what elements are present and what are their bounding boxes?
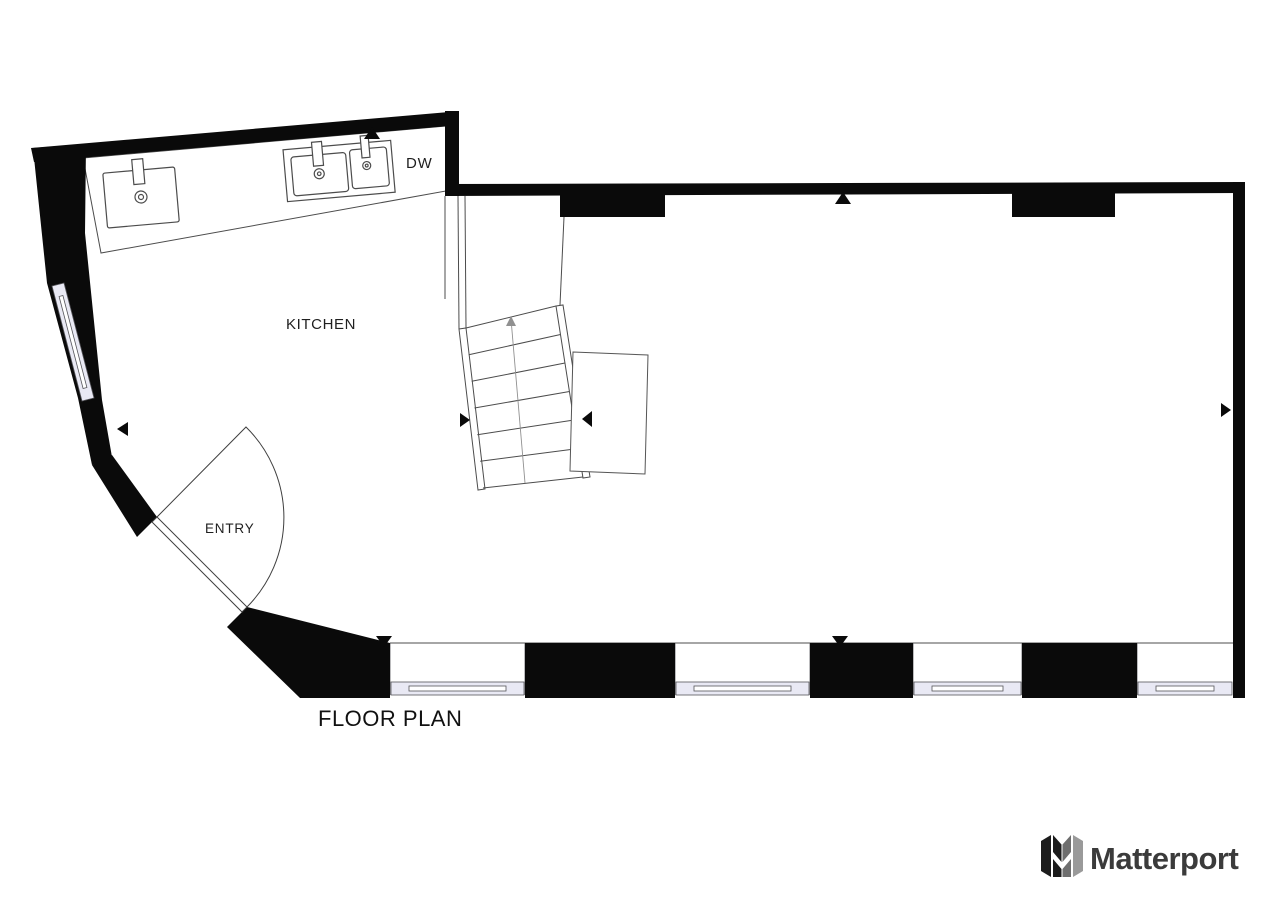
dishwasher-label: DW: [406, 155, 433, 172]
matterport-mark-icon: [1041, 835, 1083, 877]
wall-top-jog: [445, 111, 459, 196]
right-arrow-icon: [460, 413, 470, 427]
wall-bottom-segment-3: [1022, 643, 1137, 698]
wall-stub-right: [1012, 192, 1115, 217]
faucet-icon: [311, 141, 323, 166]
wall-stub-left: [560, 193, 665, 217]
left-arrow-icon: [117, 422, 128, 436]
stair-landing: [570, 352, 648, 474]
matterport-wordmark: Matterport: [1090, 841, 1238, 876]
wall-bottom-segment-2: [810, 643, 913, 698]
floor-plan-view: KITCHEN ENTRY DW FLOOR PLAN Matterport: [0, 0, 1272, 900]
entry-door: [152, 427, 284, 612]
wall-right: [1233, 182, 1245, 698]
wall-diagonal-lower: [227, 607, 390, 698]
entry-label: ENTRY: [205, 521, 255, 536]
kitchen-label: KITCHEN: [286, 316, 356, 333]
plan-title: FLOOR PLAN: [318, 706, 462, 731]
stairwell: [445, 196, 590, 490]
faucet-icon: [132, 159, 145, 185]
wall-diagonal-upper: [92, 455, 157, 537]
floor-plan-canvas: KITCHEN ENTRY DW FLOOR PLAN Matterport: [0, 0, 1272, 900]
matterport-logo: Matterport: [1041, 835, 1238, 877]
right-arrow-icon: [1221, 403, 1231, 417]
wall-bottom-segment-1: [525, 643, 675, 698]
